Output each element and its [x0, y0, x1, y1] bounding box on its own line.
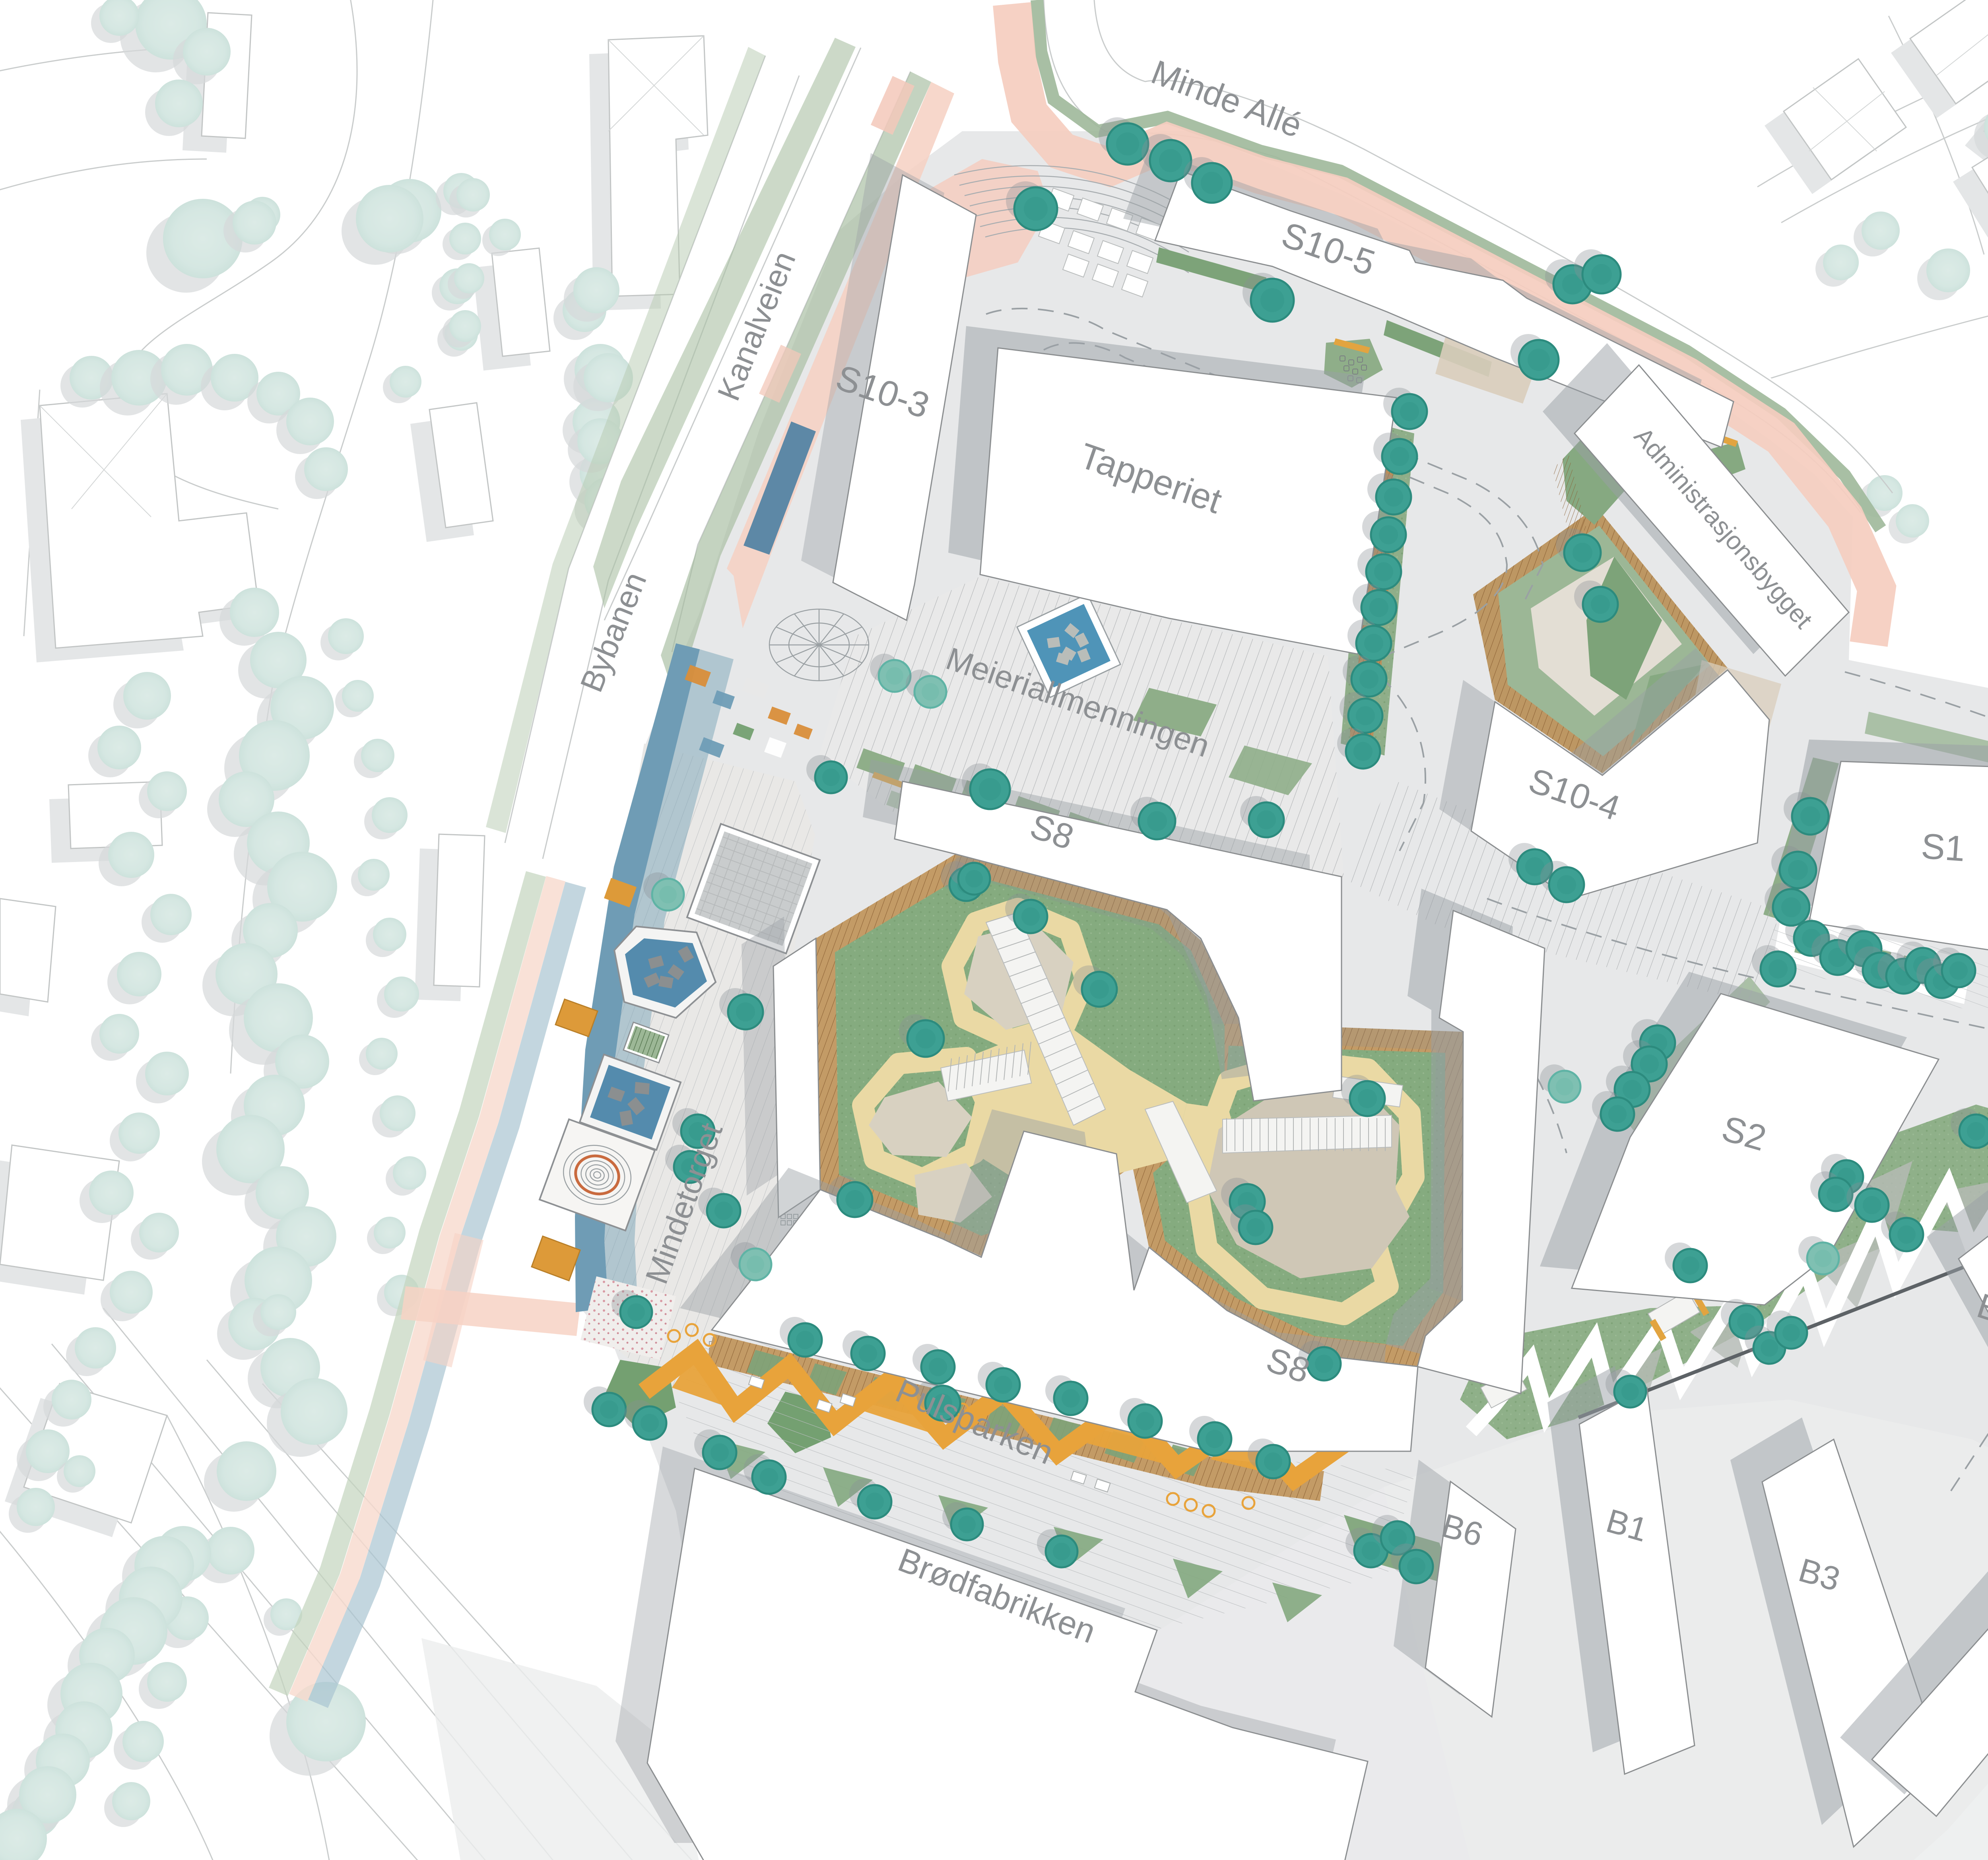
- svg-text:S1: S1: [1920, 826, 1967, 869]
